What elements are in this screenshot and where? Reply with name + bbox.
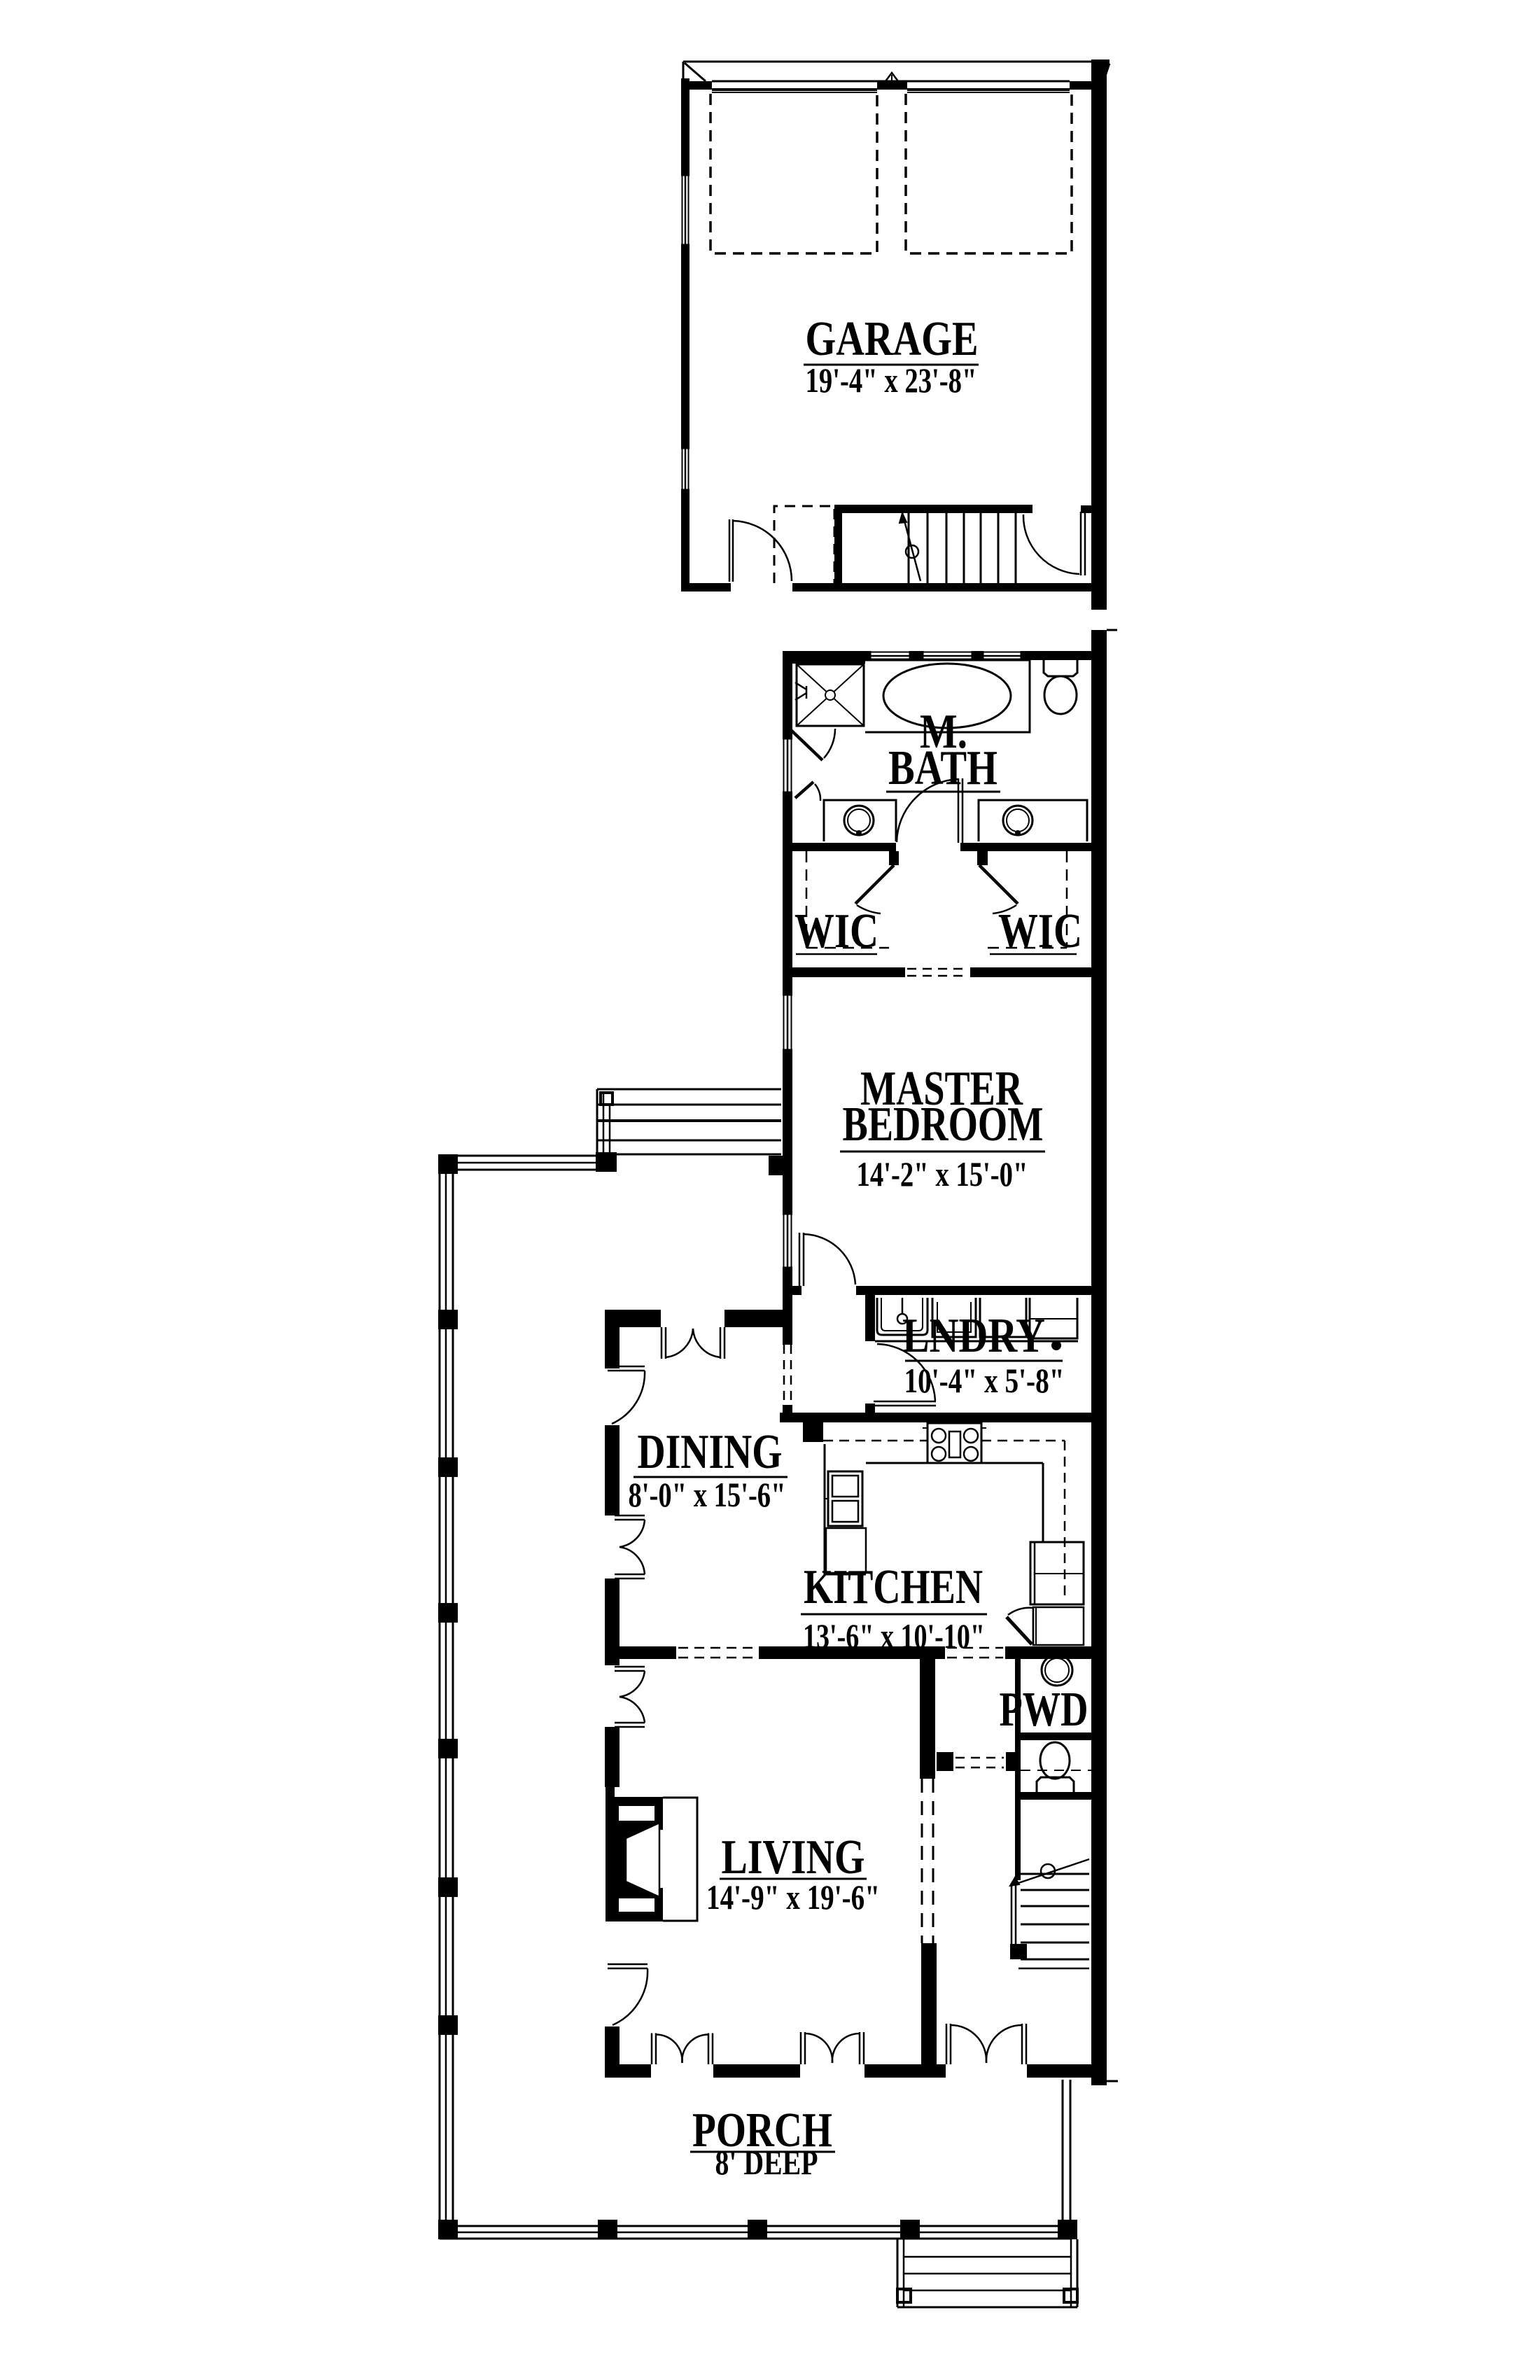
- svg-text:GARAGE: GARAGE: [806, 312, 979, 366]
- svg-text:19'-4" x 23'-8": 19'-4" x 23'-8": [806, 360, 977, 400]
- svg-text:BATH: BATH: [888, 741, 997, 795]
- svg-text:BEDROOM: BEDROOM: [843, 1098, 1044, 1151]
- svg-text:LIVING: LIVING: [722, 1830, 865, 1884]
- svg-text:WIC: WIC: [794, 904, 878, 958]
- svg-text:8'-0" x 15'-6": 8'-0" x 15'-6": [629, 1475, 786, 1514]
- svg-text:KITCHEN: KITCHEN: [804, 1560, 983, 1614]
- svg-text:PWD: PWD: [1000, 1683, 1088, 1737]
- svg-text:WIC: WIC: [998, 904, 1082, 958]
- svg-text:13'-6" x 10'-10": 13'-6" x 10'-10": [803, 1616, 985, 1655]
- svg-text:10'-4" x 5'-8": 10'-4" x 5'-8": [904, 1361, 1065, 1400]
- svg-text:DINING: DINING: [638, 1425, 783, 1479]
- svg-text:8' DEEP: 8' DEEP: [715, 2143, 818, 2182]
- svg-text:14'-9" x 19'-6": 14'-9" x 19'-6": [706, 1877, 880, 1917]
- svg-text:14'-2" x 15'-0": 14'-2" x 15'-0": [857, 1154, 1028, 1193]
- svg-text:LNDRY: LNDRY: [902, 1309, 1045, 1363]
